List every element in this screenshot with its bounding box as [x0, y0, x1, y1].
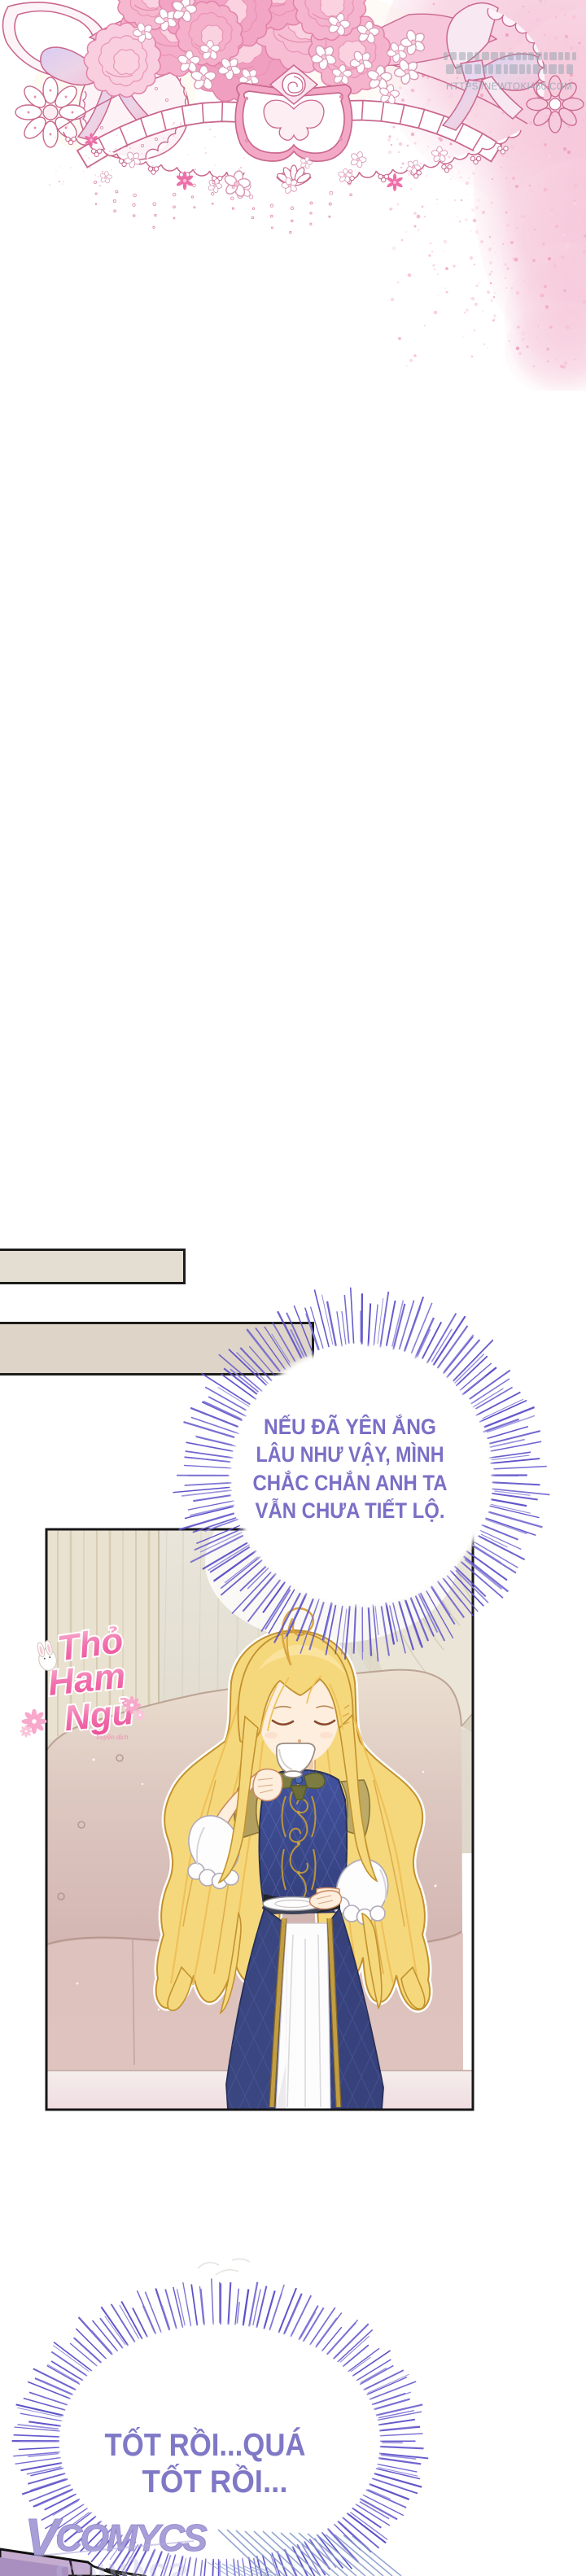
svg-text:comycs: comycs [55, 2556, 189, 2576]
svg-text:VẪN CHƯA TIẾT LỘ.: VẪN CHƯA TIẾT LỘ. [256, 1498, 445, 1523]
svg-text:NẾU ĐÃ YÊN ẮNG: NẾU ĐÃ YÊN ẮNG [264, 1414, 436, 1439]
svg-text:LÂU NHƯ VẬY, MÌNH: LÂU NHƯ VẬY, MÌNH [256, 1441, 444, 1467]
svg-text:truyện dịch: truyện dịch [96, 1734, 129, 1741]
svg-text:HTTPS//NEWTOKI460.COM: HTTPS//NEWTOKI460.COM [446, 82, 572, 92]
svg-text:CHẮC CHẮN ANH TA: CHẮC CHẮN ANH TA [253, 1470, 448, 1495]
svg-text:Ngủ: Ngủ [62, 1692, 135, 1739]
svg-text:TỐT RỒI...QUÁ: TỐT RỒI...QUÁ [105, 2426, 306, 2463]
